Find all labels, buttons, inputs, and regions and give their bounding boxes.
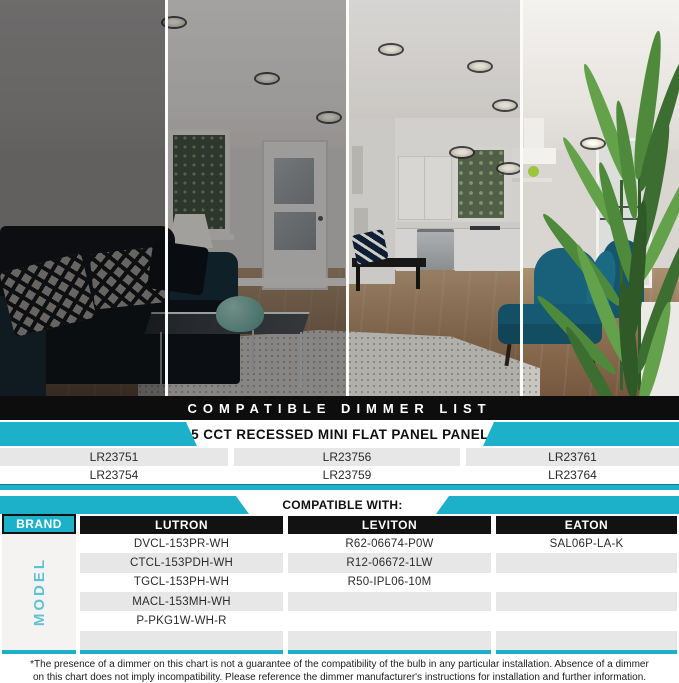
compatible-with-band: COMPATIBLE WITH: [0, 496, 679, 514]
model-cell: TGCL-153PH-WH [80, 573, 283, 592]
product-model-cell: LR23751 [0, 448, 228, 466]
decor-pear [528, 166, 539, 177]
model-label: MODEL [31, 557, 48, 626]
model-cell: R50-IPL06-10M [288, 573, 491, 592]
brand-label: BRAND [16, 517, 62, 531]
model-cell: SAL06P-LA-K [496, 534, 677, 553]
teal-bottom-border [2, 650, 76, 654]
brand-header-lutron: LUTRON [80, 516, 283, 534]
hood-chimney [524, 118, 544, 148]
brand-header-leviton: LEVITON [288, 516, 491, 534]
compatible-with-text: COMPATIBLE WITH: [282, 498, 402, 512]
model-cell: R62-06674-P0W [288, 534, 491, 553]
model-row-header: MODEL [2, 534, 76, 650]
compatible-with-ribbon: COMPATIBLE WITH: [236, 496, 449, 514]
model-cell: MACL-153MH-WH [80, 592, 283, 611]
model-cell [288, 631, 491, 650]
model-cell [496, 611, 677, 630]
teal-bottom-border [496, 650, 677, 654]
strip-divider [346, 0, 349, 396]
model-cell [496, 592, 677, 611]
brand-header-eaton: EATON [496, 516, 677, 534]
dim-overlay-40 [166, 0, 347, 396]
product-header-text: 5 CCT RECESSED MINI FLAT PANEL PANEL [191, 427, 489, 442]
product-header-band: 5 CCT RECESSED MINI FLAT PANEL PANEL [0, 422, 679, 446]
dim-overlay-70 [347, 0, 521, 396]
section-title-banner: COMPATIBLE DIMMER LIST [0, 396, 679, 420]
product-model-cell: LR23756 [234, 448, 460, 466]
lutron-model-column: DVCL-153PR-WH CTCL-153PDH-WH TGCL-153PH-… [80, 534, 283, 650]
model-cell: DVCL-153PR-WH [80, 534, 283, 553]
recessed-light [582, 139, 604, 148]
strip-divider [520, 0, 523, 396]
banner-title: COMPATIBLE DIMMER LIST [187, 401, 491, 416]
product-header-ribbon: 5 CCT RECESSED MINI FLAT PANEL PANEL [186, 422, 494, 446]
teal-bottom-border [288, 650, 491, 654]
model-cell: CTCL-153PDH-WH [80, 553, 283, 572]
product-infographic: COMPATIBLE DIMMER LIST 5 CCT RECESSED MI… [0, 0, 679, 683]
product-model-cell: LR23759 [234, 466, 460, 484]
dim-overlay-10 [0, 0, 166, 396]
model-cell [288, 592, 491, 611]
model-cell [80, 631, 283, 650]
model-cell: P-PKG1W-WH-R [80, 611, 283, 630]
model-cell [496, 631, 677, 650]
leviton-model-column: R62-06674-P0W R12-06672-1LW R50-IPL06-10… [288, 534, 491, 650]
model-cell: R12-06672-1LW [288, 553, 491, 572]
model-cell [496, 553, 677, 572]
model-cell [288, 611, 491, 630]
room-photo [0, 0, 679, 396]
teal-divider-line [0, 484, 679, 490]
product-model-cell: LR23754 [0, 466, 228, 484]
model-cell [496, 573, 677, 592]
teal-bottom-border [80, 650, 283, 654]
disclaimer-footnote: *The presence of a dimmer on this chart … [24, 658, 655, 683]
eaton-model-column: SAL06P-LA-K [496, 534, 677, 650]
brand-header-cell: BRAND [2, 514, 76, 534]
strip-divider [165, 0, 168, 396]
product-model-cell: LR23764 [466, 466, 679, 484]
product-model-cell: LR23761 [466, 448, 679, 466]
